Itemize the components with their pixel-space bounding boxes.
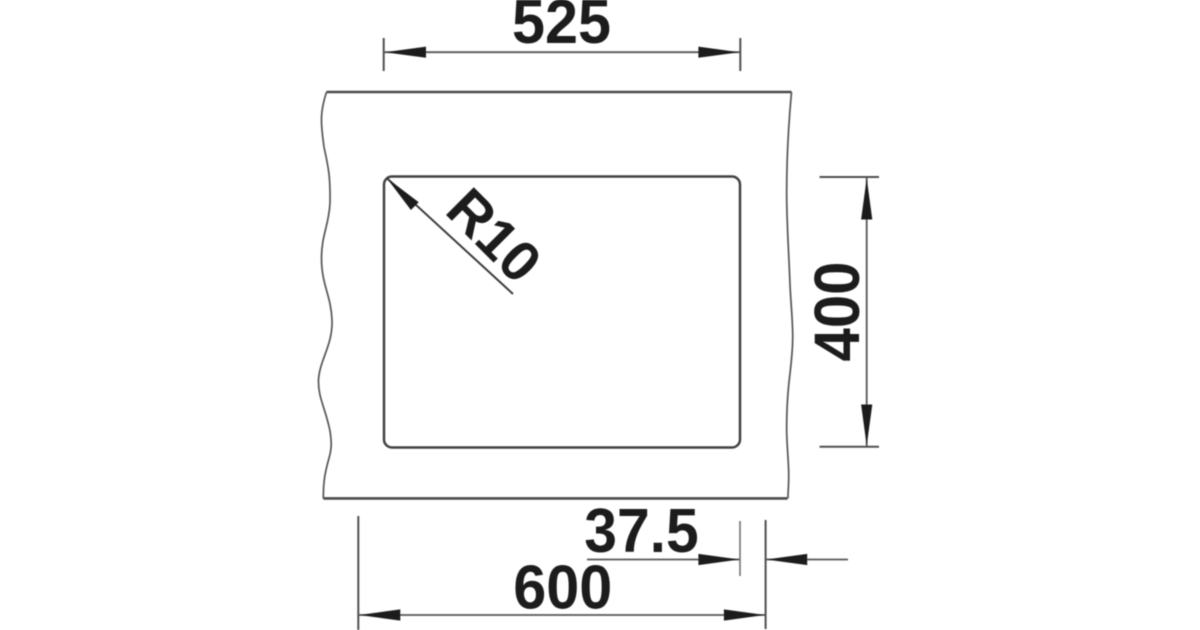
svg-text:400: 400: [801, 262, 873, 362]
svg-text:525: 525: [512, 0, 611, 57]
svg-text:600: 600: [513, 554, 612, 623]
